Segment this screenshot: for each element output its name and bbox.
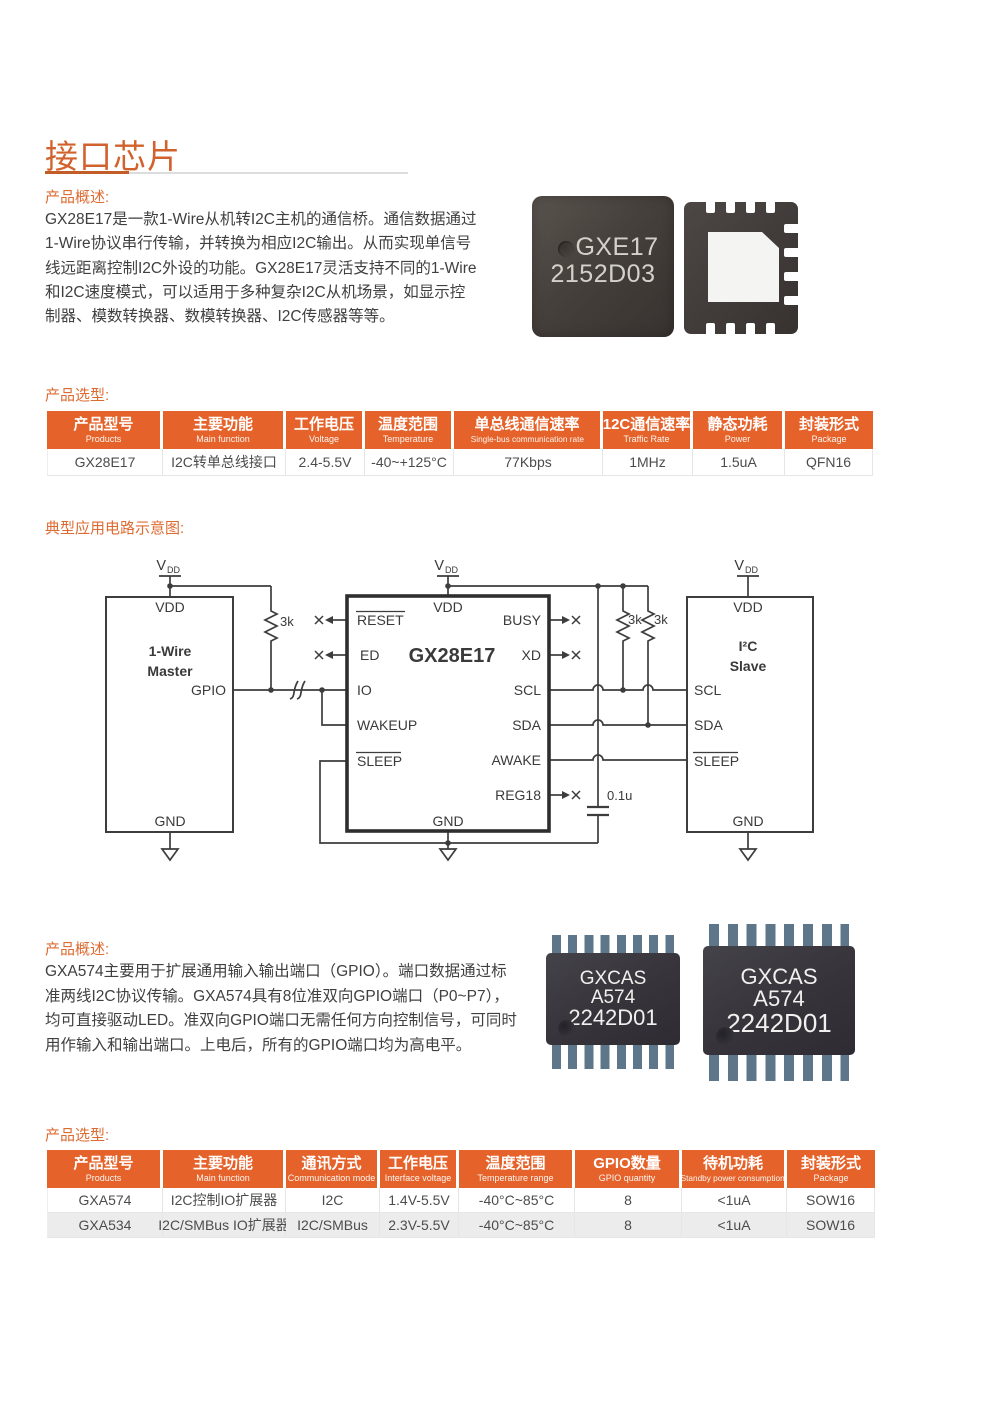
nc-arrow-busy [549,616,580,624]
soic-pin1-dot [716,1027,735,1046]
table2-cell: I2C控制IO扩展器 [163,1188,286,1213]
slave-name-line1: I²C [739,638,758,654]
table1-header-power: 静态功耗Power [693,411,785,449]
table2-cell: SOW16 [787,1213,875,1238]
soic-body: GXCAS A574 2242D01 [703,946,855,1055]
nc-arrow-reg18 [549,791,580,799]
slave-pin-sleep: SLEEP [694,753,739,769]
table2-cell: 1.4V-5.5V [380,1188,459,1213]
table1-cell: 1.5uA [693,449,785,476]
table1-cell: 2.4-5.5V [286,449,365,476]
soic-marking-line1: GXCAS [740,966,817,988]
vdd-symbol-slave: V DD [734,558,759,597]
master-gnd-label: GND [154,813,185,829]
overview1-line: 制器、模数转换器、数模转换器、I2C传感器等等。 [45,305,476,329]
nc-arrow-ed [315,651,347,659]
overview2-line: GXA574主要用于扩展通用输入输出端口（GPIO）。端口数据通过标 [45,960,517,985]
pin-label-busy: BUSY [503,612,542,628]
table2-header-temperature-range: 温度范围Temperature range [459,1150,575,1188]
title-underline-orange [45,171,129,174]
chip-marking: GXE17 2152D03 [532,234,674,288]
vdd-symbol-master: V DD [156,558,181,597]
table2-cell: 8 [575,1188,682,1213]
table2-header-main-function: 主要功能Main function [163,1150,286,1188]
vdd-text: V [434,558,444,574]
vdd-sub: DD [445,565,458,575]
master-name-line2: Master [147,663,193,679]
nc-arrow-reset [315,616,347,624]
table2-header-interface-voltage: 工作电压Interface voltage [380,1150,459,1188]
ground-symbol [740,849,756,860]
table1-cell: 77Kbps [454,449,603,476]
table1-header-main-function: 主要功能Main function [163,411,286,449]
table1-header-voltage: 工作电压Voltage [286,411,365,449]
overview-paragraph-1: GX28E17是一款1-Wire从机转I2C主机的通信桥。通信数据通过 1-Wi… [45,208,476,329]
slave-vdd-label: VDD [733,599,763,615]
table2-cell: SOW16 [787,1188,875,1213]
overview2-line: 用作输入和输出端口。上电后，所有的GPIO端口均为高电平。 [45,1034,517,1059]
overview2-line: 准两线I2C协议传输。GXA574具有8位准双向GPIO端口（P0~P7）， [45,985,517,1010]
table1-cell: 1MHz [603,449,693,476]
chip-marking-line2: 2152D03 [532,261,674,288]
pin-label-reg18: REG18 [495,787,541,803]
table2-header-gpio-quantity: GPIO数量GPIO quantity [575,1150,682,1188]
chip-gnd-label: GND [432,813,463,829]
table2-cell: -40°C~85°C [459,1188,575,1213]
table2-cell: 8 [575,1213,682,1238]
pin-label-ed: ED [360,647,379,663]
chip-image-qfn-top-view: GXE17 2152D03 [532,196,674,337]
table1-header-singlebus-rate: 单总线通信速率Single-bus communication rate [454,411,603,449]
pin-label-sleep: SLEEP [357,753,402,769]
table2-cell: GXA534 [47,1213,163,1238]
table1-cell: -40~+125°C [365,449,454,476]
table2-cell: <1uA [682,1213,787,1238]
overview1-line: 和I2C速度模式，可以适用于多种复杂I2C从机场景，如显示控 [45,281,476,305]
vdd-text: V [156,558,166,574]
capacitor-symbol [587,807,609,815]
table2-cell: I2C/SMBus IO扩展器 [163,1213,286,1238]
chip-vdd-label: VDD [433,599,463,615]
chip-name-label: GX28E17 [409,645,496,667]
master-name-line1: 1-Wire [149,643,192,659]
soic-leads-bottom [552,1045,674,1069]
title-underline-gray [129,172,408,174]
i2c-slave-box [687,597,813,832]
slave-pin-sda: SDA [694,717,723,733]
table1-header-temperature: 温度范围Temperature [365,411,454,449]
chip-image-soic-small: GXCAS A574 2242D01 [546,935,680,1070]
chip-image-qfn-bottom-view [680,198,812,340]
table2-cell: GXA574 [47,1188,163,1213]
selection-label-2: 产品选型: [45,1124,109,1145]
overview-label-2: 产品概述: [45,938,109,959]
chip-image-soic-large: GXCAS A574 2242D01 [703,924,855,1081]
nc-arrow-xd [549,651,580,659]
product-table-2: 产品型号Products 主要功能Main function 通讯方式Commu… [47,1150,875,1238]
ground-symbol [440,849,456,860]
overview-label-1: 产品概述: [45,186,109,207]
vdd-text: V [734,558,744,574]
product-table-1: 产品型号Products 主要功能Main function 工作电压Volta… [47,411,873,476]
table2-header-standby-power: 待机功耗Standby power consumption [682,1150,787,1188]
pin-label-reset: RESET [357,612,404,628]
ground-symbol [162,849,178,860]
overview1-line: GX28E17是一款1-Wire从机转I2C主机的通信桥。通信数据通过 [45,208,476,232]
table2-header-package: 封装形式Package [787,1150,875,1188]
table1-cell: QFN16 [785,449,873,476]
table2-cell: <1uA [682,1188,787,1213]
vdd-sub: DD [745,565,758,575]
one-wire-master-box [106,597,233,832]
vdd-sub: DD [167,565,180,575]
master-gpio-label: GPIO [191,682,226,698]
circuit-label: 典型应用电路示意图: [45,517,184,538]
slave-gnd-label: GND [732,813,763,829]
soic-leads-top [552,935,674,954]
soic-body: GXCAS A574 2242D01 [546,953,680,1045]
table2-header-communication-mode: 通讯方式Communication mode [286,1150,380,1188]
resistor-label-3k: 3k [628,612,642,627]
vdd-symbol-chip: V DD [434,558,459,596]
qfn-thermal-pad [708,232,779,302]
slave-pin-scl: SCL [694,682,721,698]
overview-paragraph-2: GXA574主要用于扩展通用输入输出端口（GPIO）。端口数据通过标 准两线I2… [45,960,517,1058]
soic-marking-line2: A574 [753,988,804,1010]
table1-header-traffic-rate: 12C通信速率Traffic Rate [603,411,693,449]
pin-label-xd: XD [522,647,541,663]
pin-label-wakeup: WAKEUP [357,717,417,733]
soic-pin1-dot [558,1020,575,1037]
resistor-label-3k: 3k [280,614,294,629]
soic-leads-bottom [709,1055,849,1081]
datasheet-page: 接口芯片 产品概述: GX28E17是一款1-Wire从机转I2C主机的通信桥。… [0,0,1000,1426]
overview2-line: 均可直接驱动LED。准双向GPIO端口无需任何方向控制信号，可同时 [45,1009,517,1034]
application-circuit-diagram: V DD V DD V DD [0,540,1000,880]
soic-marking-line3: 2242D01 [726,1010,832,1036]
chip-marking-line1: GXE17 [532,234,674,261]
table1-cell: GX28E17 [47,449,163,476]
table2-cell: -40°C~85°C [459,1213,575,1238]
soic-marking-line3: 2242D01 [568,1007,657,1029]
table1-header-package: 封装形式Package [785,411,873,449]
pin-label-awake: AWAKE [491,752,541,768]
table1-cell: I2C转单总线接口 [163,449,286,476]
capacitor-label: 0.1u [607,788,632,803]
soic-marking-line1: GXCAS [580,969,647,988]
table2-cell: I2C/SMBus [286,1213,380,1238]
overview1-line: 1-Wire协议串行传输，并转换为相应I2C输出。从而实现单信号 [45,232,476,256]
overview1-line: 线远距离控制I2C外设的功能。GX28E17灵活支持不同的1-Wire [45,257,476,281]
soic-leads-top [709,924,849,947]
table2-cell: 2.3V-5.5V [380,1213,459,1238]
pin-label-sda: SDA [512,717,541,733]
table2-cell: I2C [286,1188,380,1213]
resistor-label-3k: 3k [654,612,668,627]
selection-label-1: 产品选型: [45,384,109,405]
table1-header-products: 产品型号Products [47,411,163,449]
pin-label-io: IO [357,682,372,698]
table2-header-products: 产品型号Products [47,1150,163,1188]
slave-name-line2: Slave [730,658,767,674]
pin-label-scl: SCL [514,682,541,698]
master-vdd-label: VDD [155,599,185,615]
